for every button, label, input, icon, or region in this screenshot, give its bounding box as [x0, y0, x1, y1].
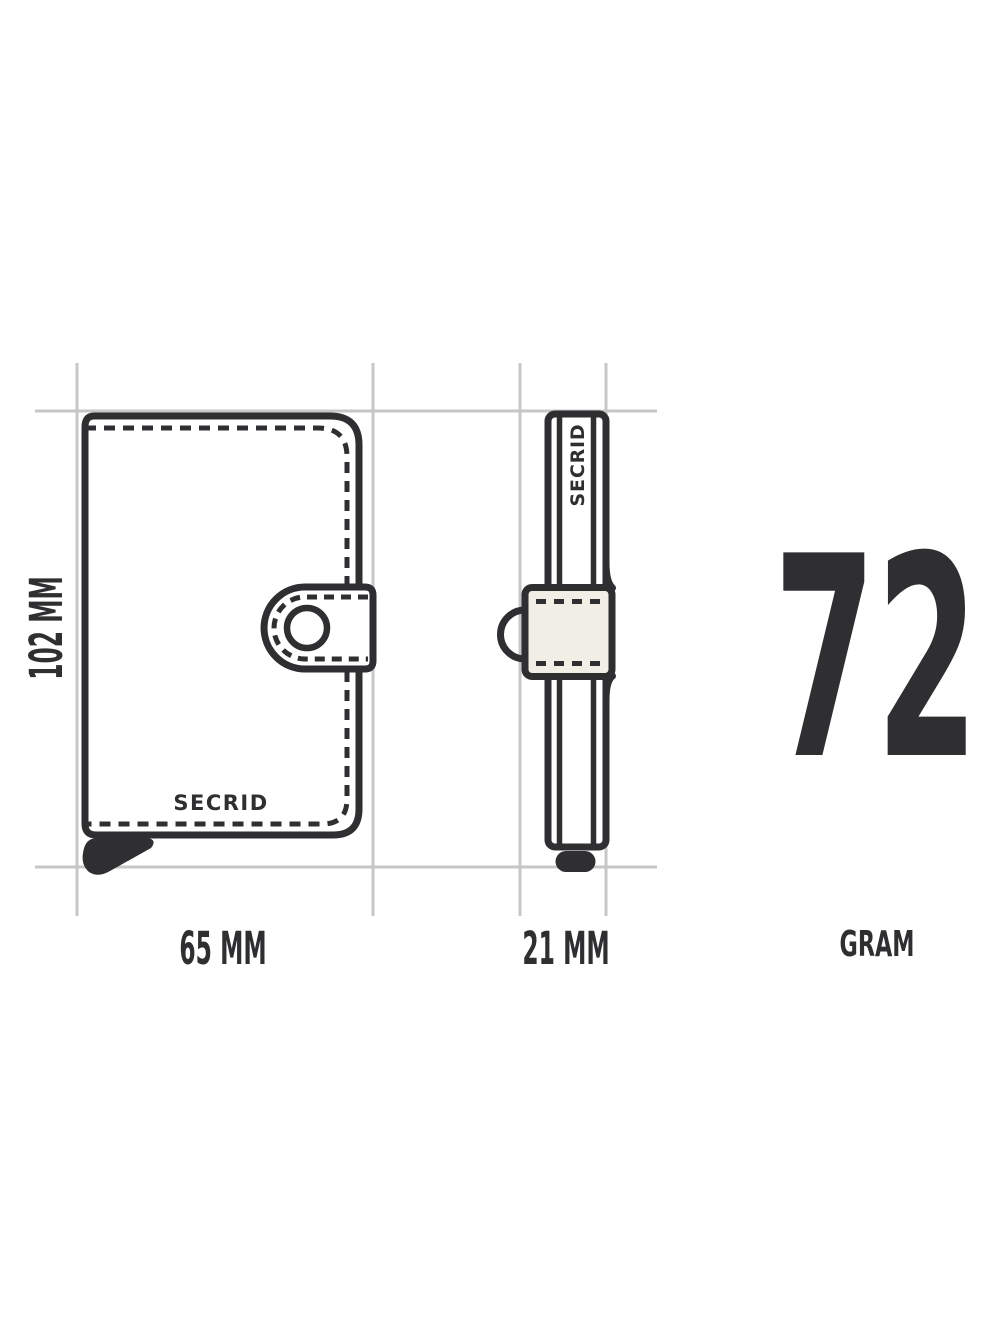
height-dimension-label: 102 MM	[22, 576, 73, 680]
front-view: SECRID	[83, 416, 373, 875]
width-dimension-label: 65 MM	[179, 924, 266, 975]
depth-dimension-label: 21 MM	[522, 924, 609, 975]
side-view: SECRID	[501, 414, 613, 872]
dimension-drawing-svg: SECRID SECRID	[0, 0, 1000, 1334]
front-brand-logo: SECRID	[173, 791, 268, 815]
flare-top-right	[606, 562, 613, 588]
wallet-dimension-diagram: SECRID SECRID	[0, 0, 1000, 1334]
weight-figure: 72 GRAM	[773, 498, 978, 966]
side-lever-pill	[556, 851, 596, 872]
weight-unit-label: GRAM	[840, 924, 915, 966]
snap-button	[287, 608, 327, 648]
side-brand-logo: SECRID	[567, 424, 589, 507]
card-lever	[83, 838, 154, 875]
weight-value: 72	[773, 498, 978, 822]
